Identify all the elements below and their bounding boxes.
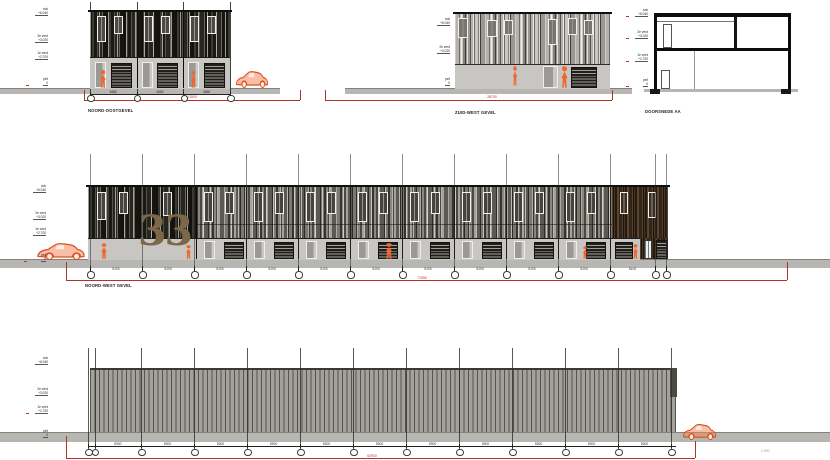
level-value: +3.020 [35,392,48,397]
dimension-tick [141,444,142,449]
dimension-tick [618,444,619,449]
grid-bubble [244,449,251,456]
grid-bubble [456,449,463,456]
grid-line [247,348,248,454]
dimension-line [88,446,676,447]
house-number: 33 [138,211,191,252]
grid-line [671,348,672,454]
dimension-text: 5300 [641,442,648,446]
dimension-tick [95,444,96,449]
dimension-text: 5300 [217,442,224,446]
grid-bubble [562,449,569,456]
dimension-tick [671,444,672,449]
scale-note: 1:200 [761,449,770,453]
grid-line [194,348,195,454]
red-dimension-text: 62900 [367,454,376,458]
dimension-text: 5300 [482,442,489,446]
fence-wall [90,368,676,432]
dimension-tick [353,444,354,449]
grid-line [565,348,566,454]
dimension-text: 5300 [588,442,595,446]
fence-elevation: 5300530053005300530053005300530053005300… [0,0,830,460]
elevation-northeast-label: NOORD-OOSTGEVEL [88,108,133,113]
architectural-sheet: 21500 468046804680nok +6.0402e verd +3.0… [0,0,830,460]
elevation-northwest-label: NOORD-WEST GEVEL [85,283,132,288]
dimension-text: 5300 [114,442,121,446]
grid-bubble [138,449,145,456]
level-value: 0 [43,434,48,439]
level-red-tick [26,413,29,414]
dimension-tick [459,444,460,449]
grid-line [300,348,301,454]
dimension-tick [194,444,195,449]
grid-bubble [668,449,675,456]
grid-line [512,348,513,454]
dimension-text: 5300 [164,442,171,446]
dimension-tick [88,444,89,449]
dimension-tick [247,444,248,449]
dimension-tick [406,444,407,449]
dimension-tick [565,444,566,449]
red-dimension-line [695,441,696,458]
level-marker: peil 0 [26,430,48,438]
grid-bubble [297,449,304,456]
dimension-text: 5300 [535,442,542,446]
section-aa-label: DOORSNEDE AA [645,109,681,114]
grid-line [406,348,407,454]
grid-line [618,348,619,454]
red-dimension-line [66,436,67,458]
dimension-tick [300,444,301,449]
grid-bubble [191,449,198,456]
grid-line [353,348,354,454]
red-dimension-line [66,458,695,459]
elevation-southwest-label: ZUID-WEST GEVEL [455,110,496,115]
grid-line [88,348,89,454]
grid-bubble [615,449,622,456]
level-marker: 2e verd +3.020 [26,388,48,396]
dimension-text: 5300 [323,442,330,446]
grid-line [459,348,460,454]
grid-bubble [350,449,357,456]
car-icon [682,423,717,441]
level-marker: nok +6.040 [26,357,48,365]
level-value: +2.700 [35,410,48,415]
level-marker: 1e verd +2.700 [26,406,48,414]
grid-bubble [92,449,99,456]
grid-bubble [403,449,410,456]
dimension-text: 5300 [376,442,383,446]
level-value: +6.040 [35,361,48,366]
dimension-tick [512,444,513,449]
dimension-text: 5300 [270,442,277,446]
grid-bubble [509,449,516,456]
grid-line [95,348,96,454]
dimension-text: 5300 [429,442,436,446]
grid-line [141,348,142,454]
